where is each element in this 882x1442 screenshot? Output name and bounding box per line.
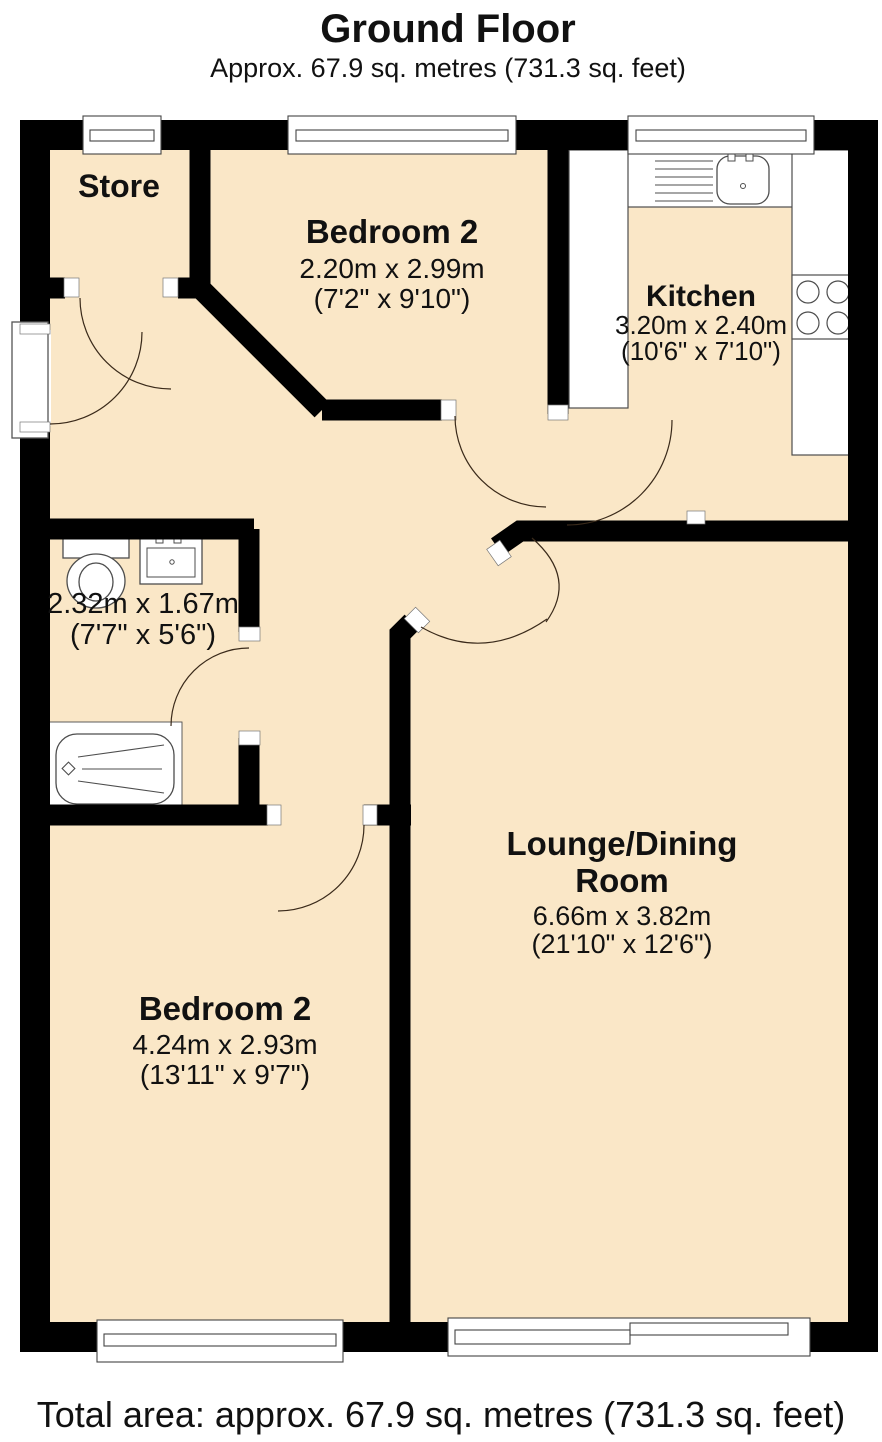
entrance-door — [12, 322, 51, 438]
plan-title: Ground Floor Approx. 67.9 sq. metres (73… — [210, 7, 686, 83]
room-dims-metric: 6.66m x 3.82m — [533, 901, 712, 931]
room-bedroom2-top: Bedroom 2 2.20m x 2.99m (7'2" x 9'10") — [299, 213, 484, 314]
page-title: Ground Floor — [320, 7, 576, 51]
room-label: Bedroom 2 — [306, 213, 478, 250]
floor-plan-canvas: Ground Floor Approx. 67.9 sq. metres (73… — [0, 0, 882, 1442]
room-dims-metric: 2.32m x 1.67m — [47, 588, 239, 620]
worktop-left — [569, 150, 628, 408]
room-label-line2: Room — [575, 862, 669, 899]
window-bedroom2-bottom — [97, 1320, 343, 1362]
window-bedroom2-top — [288, 116, 516, 154]
room-dims-imperial: (13'11" x 9'7") — [140, 1059, 310, 1090]
room-bathroom: 2.32m x 1.67m (7'7" x 5'6") — [47, 588, 239, 651]
room-dims-imperial: (7'7" x 5'6") — [70, 619, 216, 651]
room-label: Kitchen — [646, 280, 756, 313]
hob-icon — [792, 275, 853, 339]
room-store: Store — [78, 168, 160, 204]
room-dims-metric: 2.20m x 2.99m — [299, 253, 484, 284]
bathtub-icon — [48, 722, 182, 814]
room-dims-imperial: (21'10" x 12'6") — [531, 929, 712, 959]
room-dims-imperial: (10'6" x 7'10") — [621, 336, 781, 366]
room-label-line1: Lounge/Dining — [507, 825, 738, 862]
plan-footer: Total area: approx. 67.9 sq. metres (731… — [37, 1394, 845, 1435]
total-area-text: Total area: approx. 67.9 sq. metres (731… — [37, 1394, 845, 1435]
room-bedroom2-bottom: Bedroom 2 4.24m x 2.93m (13'11" x 9'7") — [132, 990, 317, 1090]
room-dims-imperial: (7'2" x 9'10") — [314, 283, 471, 314]
room-dims-metric: 4.24m x 2.93m — [132, 1029, 317, 1060]
floorplan-page: { "title": { "text": "Ground Floor", "su… — [0, 0, 882, 1442]
window-store — [83, 116, 161, 154]
window-kitchen — [628, 116, 814, 154]
page-subtitle: Approx. 67.9 sq. metres (731.3 sq. feet) — [210, 53, 686, 83]
room-label: Store — [78, 168, 160, 204]
patio-doors — [448, 1318, 810, 1356]
room-label: Bedroom 2 — [139, 990, 311, 1027]
